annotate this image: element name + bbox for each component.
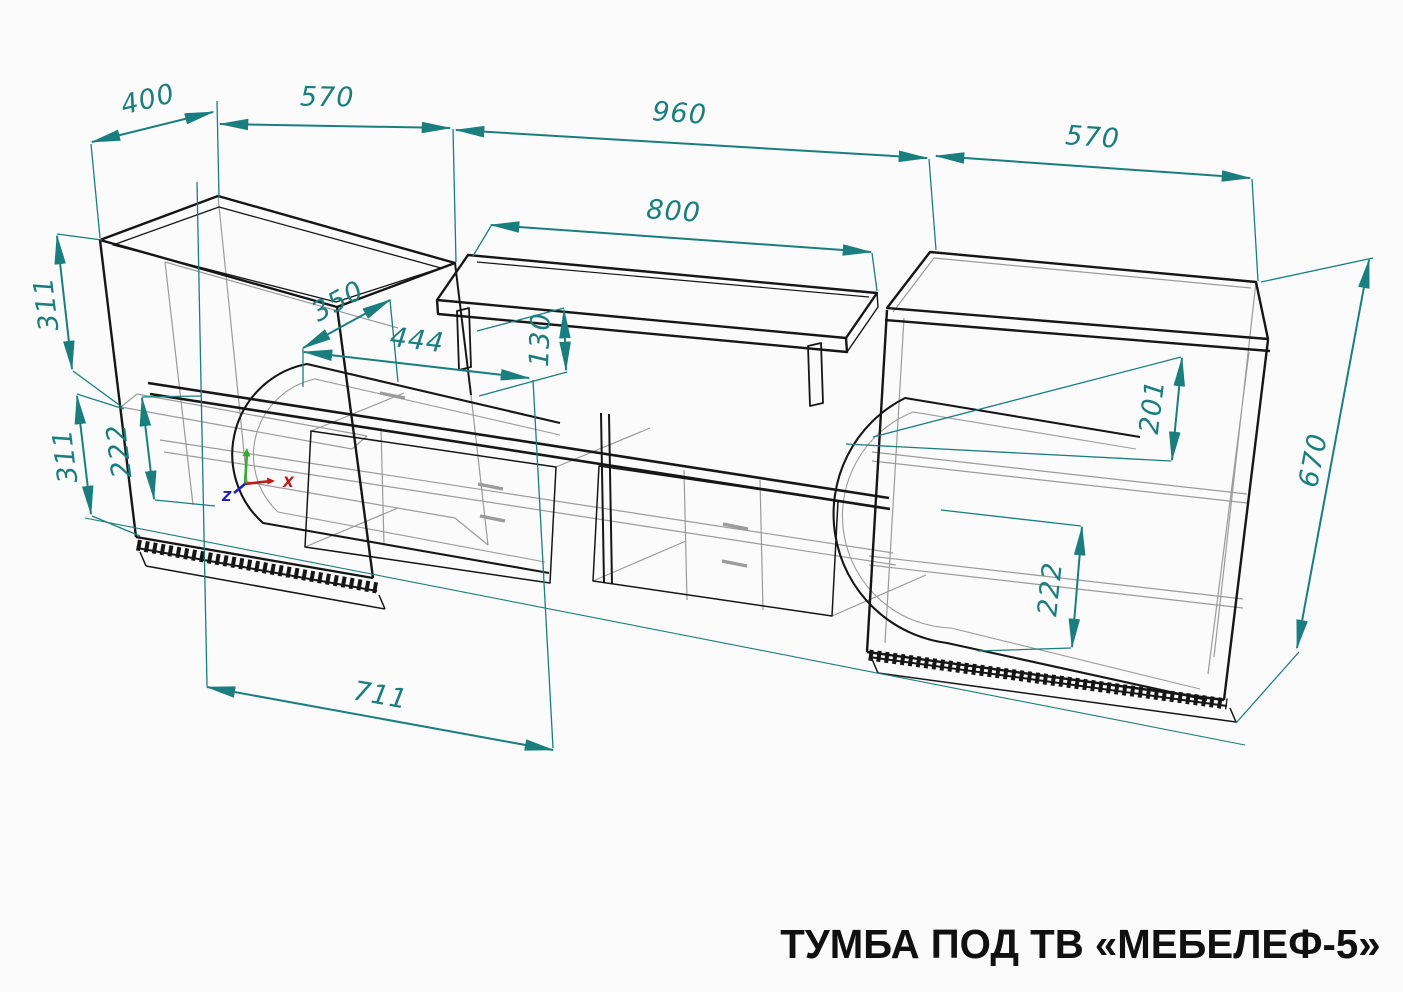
dim-label-left-door-height: 222 (101, 422, 138, 480)
x-axis-label: X (282, 475, 295, 491)
hidden-edges-layer (121, 196, 1256, 689)
dim-label-door-width: 711 (351, 676, 410, 716)
dim-label-shelf-height: 130 (524, 312, 557, 368)
visible-edges-layer (100, 196, 1270, 722)
tv-shelf-wireframe (437, 255, 878, 406)
dim-label-width-left: 570 (300, 82, 355, 114)
dim-label-right-niche-height: 201 (1134, 378, 1171, 436)
dim-label-niche-width: 444 (388, 322, 446, 359)
dim-label-left-lower-height: 311 (47, 427, 84, 485)
dim-label-right-door-height: 222 (1032, 560, 1069, 617)
dimension-labels: 400 570 960 570 800 130 350 444 311 311 … (28, 78, 1334, 716)
drawing-title: ТУМБА ПОД ТВ «МЕБЕЛЕФ-5» (781, 921, 1381, 968)
right-cabinet-wireframe (867, 252, 1270, 722)
technical-drawing-canvas: 400 570 960 570 800 130 350 444 311 311 … (0, 0, 1403, 992)
dim-label-depth-left: 400 (118, 78, 178, 121)
dimension-layer: 400 570 960 570 800 130 350 444 311 311 … (28, 78, 1373, 750)
dim-label-left-upper-height: 311 (28, 275, 65, 333)
z-axis-label: Z (221, 490, 232, 505)
dim-label-width-right: 570 (1064, 120, 1121, 155)
dim-label-shelf-width: 800 (645, 194, 702, 229)
center-unit-wireframe (148, 383, 890, 616)
dim-label-width-center: 960 (651, 96, 708, 131)
